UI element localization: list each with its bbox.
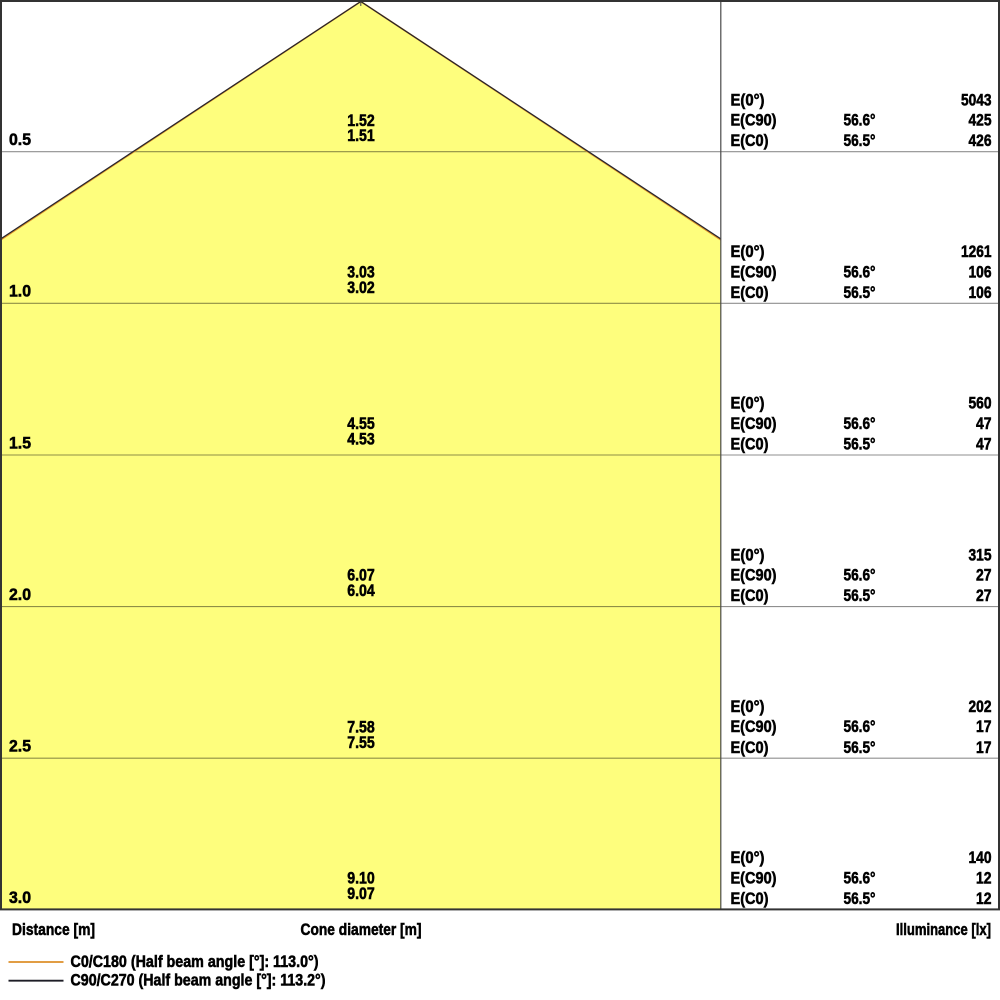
svg-text:47: 47: [976, 415, 992, 433]
svg-text:E(C90): E(C90): [731, 415, 777, 433]
svg-text:56.6°: 56.6°: [844, 415, 876, 433]
svg-text:56.5°: 56.5°: [844, 284, 876, 302]
svg-text:56.6°: 56.6°: [844, 567, 876, 585]
svg-text:1.51: 1.51: [347, 127, 375, 145]
svg-text:Cone diameter [m]: Cone diameter [m]: [301, 921, 422, 939]
svg-text:140: 140: [969, 849, 992, 867]
svg-text:3.0: 3.0: [9, 889, 31, 907]
svg-text:202: 202: [969, 698, 992, 716]
svg-text:2.0: 2.0: [9, 586, 31, 604]
svg-text:12: 12: [976, 869, 992, 887]
svg-text:E(C90): E(C90): [731, 112, 777, 130]
svg-text:27: 27: [976, 567, 992, 585]
svg-text:1.5: 1.5: [9, 434, 31, 452]
svg-text:2.5: 2.5: [9, 738, 31, 756]
svg-text:E(C0): E(C0): [731, 739, 769, 757]
svg-text:E(C90): E(C90): [731, 263, 777, 281]
svg-text:56.5°: 56.5°: [844, 132, 876, 150]
svg-text:Illuminance [lx]: Illuminance [lx]: [896, 921, 991, 939]
svg-text:E(0°): E(0°): [731, 243, 765, 261]
svg-text:17: 17: [976, 718, 992, 736]
svg-text:E(C90): E(C90): [731, 718, 777, 736]
svg-text:12: 12: [976, 890, 992, 908]
svg-text:425: 425: [969, 112, 992, 130]
svg-text:E(0°): E(0°): [731, 849, 765, 867]
svg-text:7.55: 7.55: [347, 734, 375, 752]
svg-text:315: 315: [969, 546, 992, 564]
svg-text:5043: 5043: [961, 91, 992, 109]
svg-text:56.6°: 56.6°: [844, 869, 876, 887]
svg-text:560: 560: [969, 395, 992, 413]
svg-text:E(C0): E(C0): [731, 436, 769, 454]
svg-text:56.5°: 56.5°: [844, 587, 876, 605]
svg-text:9.07: 9.07: [347, 885, 375, 903]
svg-text:56.5°: 56.5°: [844, 436, 876, 454]
svg-text:1.0: 1.0: [9, 283, 31, 301]
svg-text:E(0°): E(0°): [731, 395, 765, 413]
svg-text:E(C0): E(C0): [731, 132, 769, 150]
svg-text:27: 27: [976, 587, 992, 605]
svg-text:56.5°: 56.5°: [844, 739, 876, 757]
svg-text:E(C90): E(C90): [731, 869, 777, 887]
svg-text:17: 17: [976, 739, 992, 757]
svg-text:E(0°): E(0°): [731, 546, 765, 564]
svg-text:E(C90): E(C90): [731, 567, 777, 585]
svg-text:C0/C180 (Half beam angle [°]:: C0/C180 (Half beam angle [°]: 113.0°): [71, 953, 319, 971]
svg-text:106: 106: [969, 263, 992, 281]
svg-text:0.5: 0.5: [9, 131, 31, 149]
svg-text:56.5°: 56.5°: [844, 890, 876, 908]
svg-text:426: 426: [969, 132, 992, 150]
svg-text:C90/C270 (Half beam angle [°]:: C90/C270 (Half beam angle [°]: 113.2°): [71, 972, 326, 990]
svg-text:56.6°: 56.6°: [844, 263, 876, 281]
svg-text:E(C0): E(C0): [731, 284, 769, 302]
svg-text:106: 106: [969, 284, 992, 302]
svg-text:6.04: 6.04: [347, 582, 375, 600]
svg-text:56.6°: 56.6°: [844, 718, 876, 736]
svg-text:47: 47: [976, 436, 992, 454]
svg-text:E(C0): E(C0): [731, 587, 769, 605]
svg-text:E(0°): E(0°): [731, 698, 765, 716]
svg-text:56.6°: 56.6°: [844, 112, 876, 130]
svg-text:E(0°): E(0°): [731, 91, 765, 109]
svg-text:3.02: 3.02: [347, 279, 375, 297]
svg-text:1261: 1261: [961, 243, 992, 261]
svg-text:4.53: 4.53: [347, 431, 375, 449]
svg-text:Distance [m]: Distance [m]: [12, 921, 95, 939]
svg-text:E(C0): E(C0): [731, 890, 769, 908]
